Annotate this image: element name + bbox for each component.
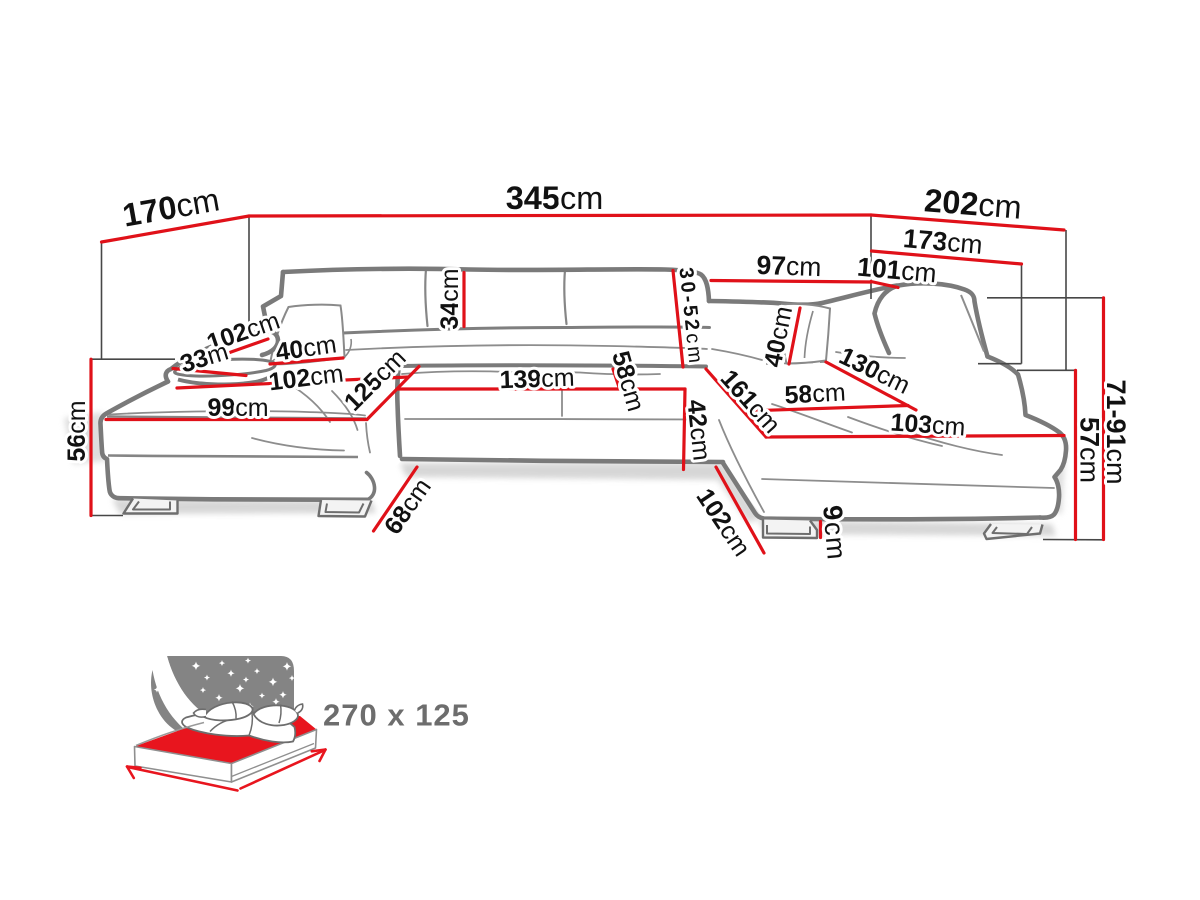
svg-text:57cm: 57cm [1075,417,1105,483]
svg-text:103cm: 103cm [890,408,967,441]
svg-text:99cm: 99cm [207,394,268,422]
svg-text:58cm: 58cm [784,378,847,409]
svg-text:139cm: 139cm [499,364,575,395]
svg-text:97cm: 97cm [756,250,822,282]
svg-text:71-91cm: 71-91cm [1101,379,1131,484]
svg-text:9cm: 9cm [817,504,852,562]
svg-text:56cm: 56cm [63,400,91,461]
svg-text:202cm: 202cm [923,182,1023,226]
svg-text:34cm: 34cm [436,268,464,329]
svg-text:270 x 125: 270 x 125 [323,698,470,733]
svg-text:345cm: 345cm [506,180,604,216]
